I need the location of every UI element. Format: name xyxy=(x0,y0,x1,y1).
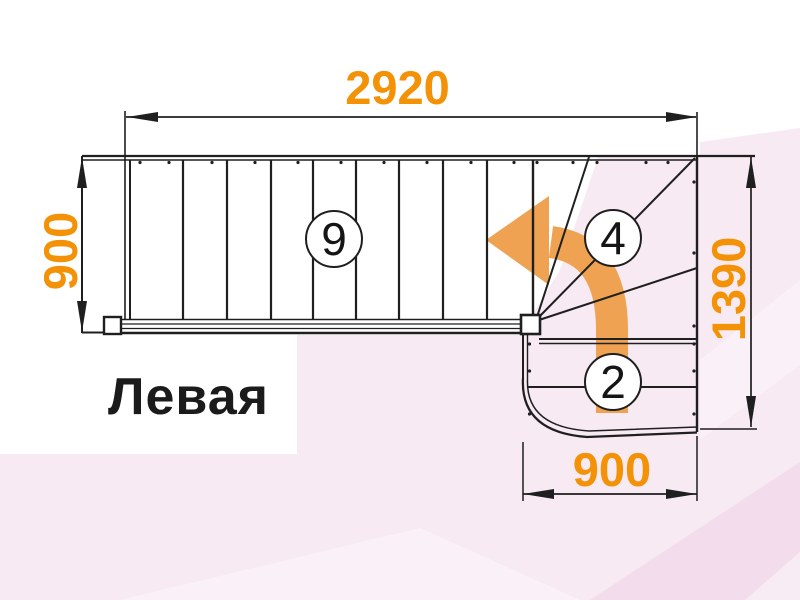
step-count-badge-bottom-flight: 2 xyxy=(584,353,642,411)
dimension-label-bottom: 900 xyxy=(542,446,682,494)
newel-post-center xyxy=(521,315,540,334)
stair-plan-diagram: 2920 900 1390 900 9 4 2 Левая xyxy=(0,0,800,600)
step-count-badge-straight-flight: 9 xyxy=(305,210,363,268)
step-count-badge-winders: 4 xyxy=(584,209,642,267)
dimension-label-top: 2920 xyxy=(325,64,470,112)
dimension-label-right: 1390 xyxy=(705,209,753,369)
stringer-board xyxy=(104,318,522,334)
newel-post-left xyxy=(104,317,121,334)
dimension-label-left: 900 xyxy=(37,176,85,326)
plan-title: Левая xyxy=(108,370,269,424)
